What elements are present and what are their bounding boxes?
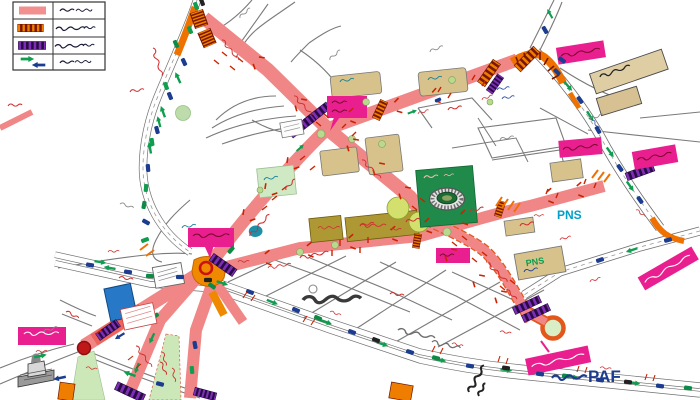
svg-text:PAF: PAF xyxy=(588,367,621,386)
svg-text:PNS: PNS xyxy=(557,208,582,222)
